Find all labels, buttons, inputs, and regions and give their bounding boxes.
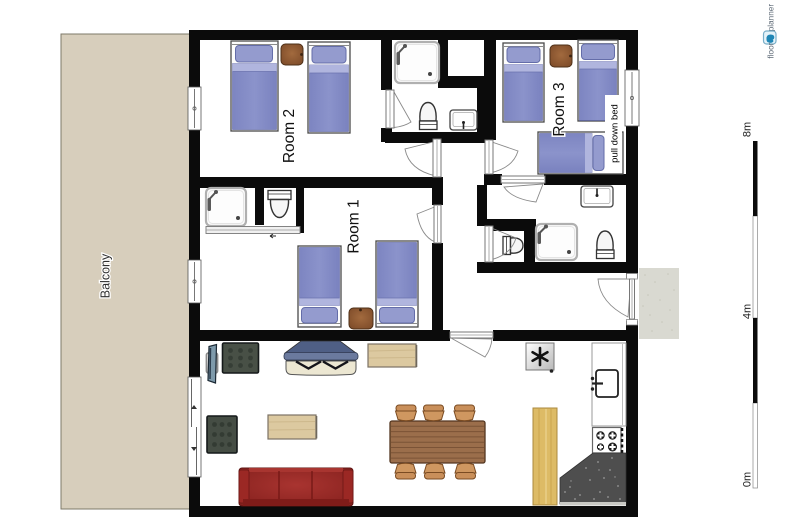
svg-text:pull down bed: pull down bed (610, 104, 621, 163)
svg-text:4m: 4m (742, 304, 754, 319)
svg-text:Room 2: Room 2 (281, 109, 298, 163)
svg-text:Room 3: Room 3 (551, 82, 568, 136)
svg-text:0m: 0m (742, 472, 754, 487)
svg-text:Room 1: Room 1 (346, 199, 363, 253)
svg-text:8m: 8m (742, 122, 754, 137)
svg-text:planner: planner (767, 4, 776, 32)
svg-text:floor: floor (767, 42, 776, 58)
svg-text:Balcony: Balcony (99, 253, 113, 298)
